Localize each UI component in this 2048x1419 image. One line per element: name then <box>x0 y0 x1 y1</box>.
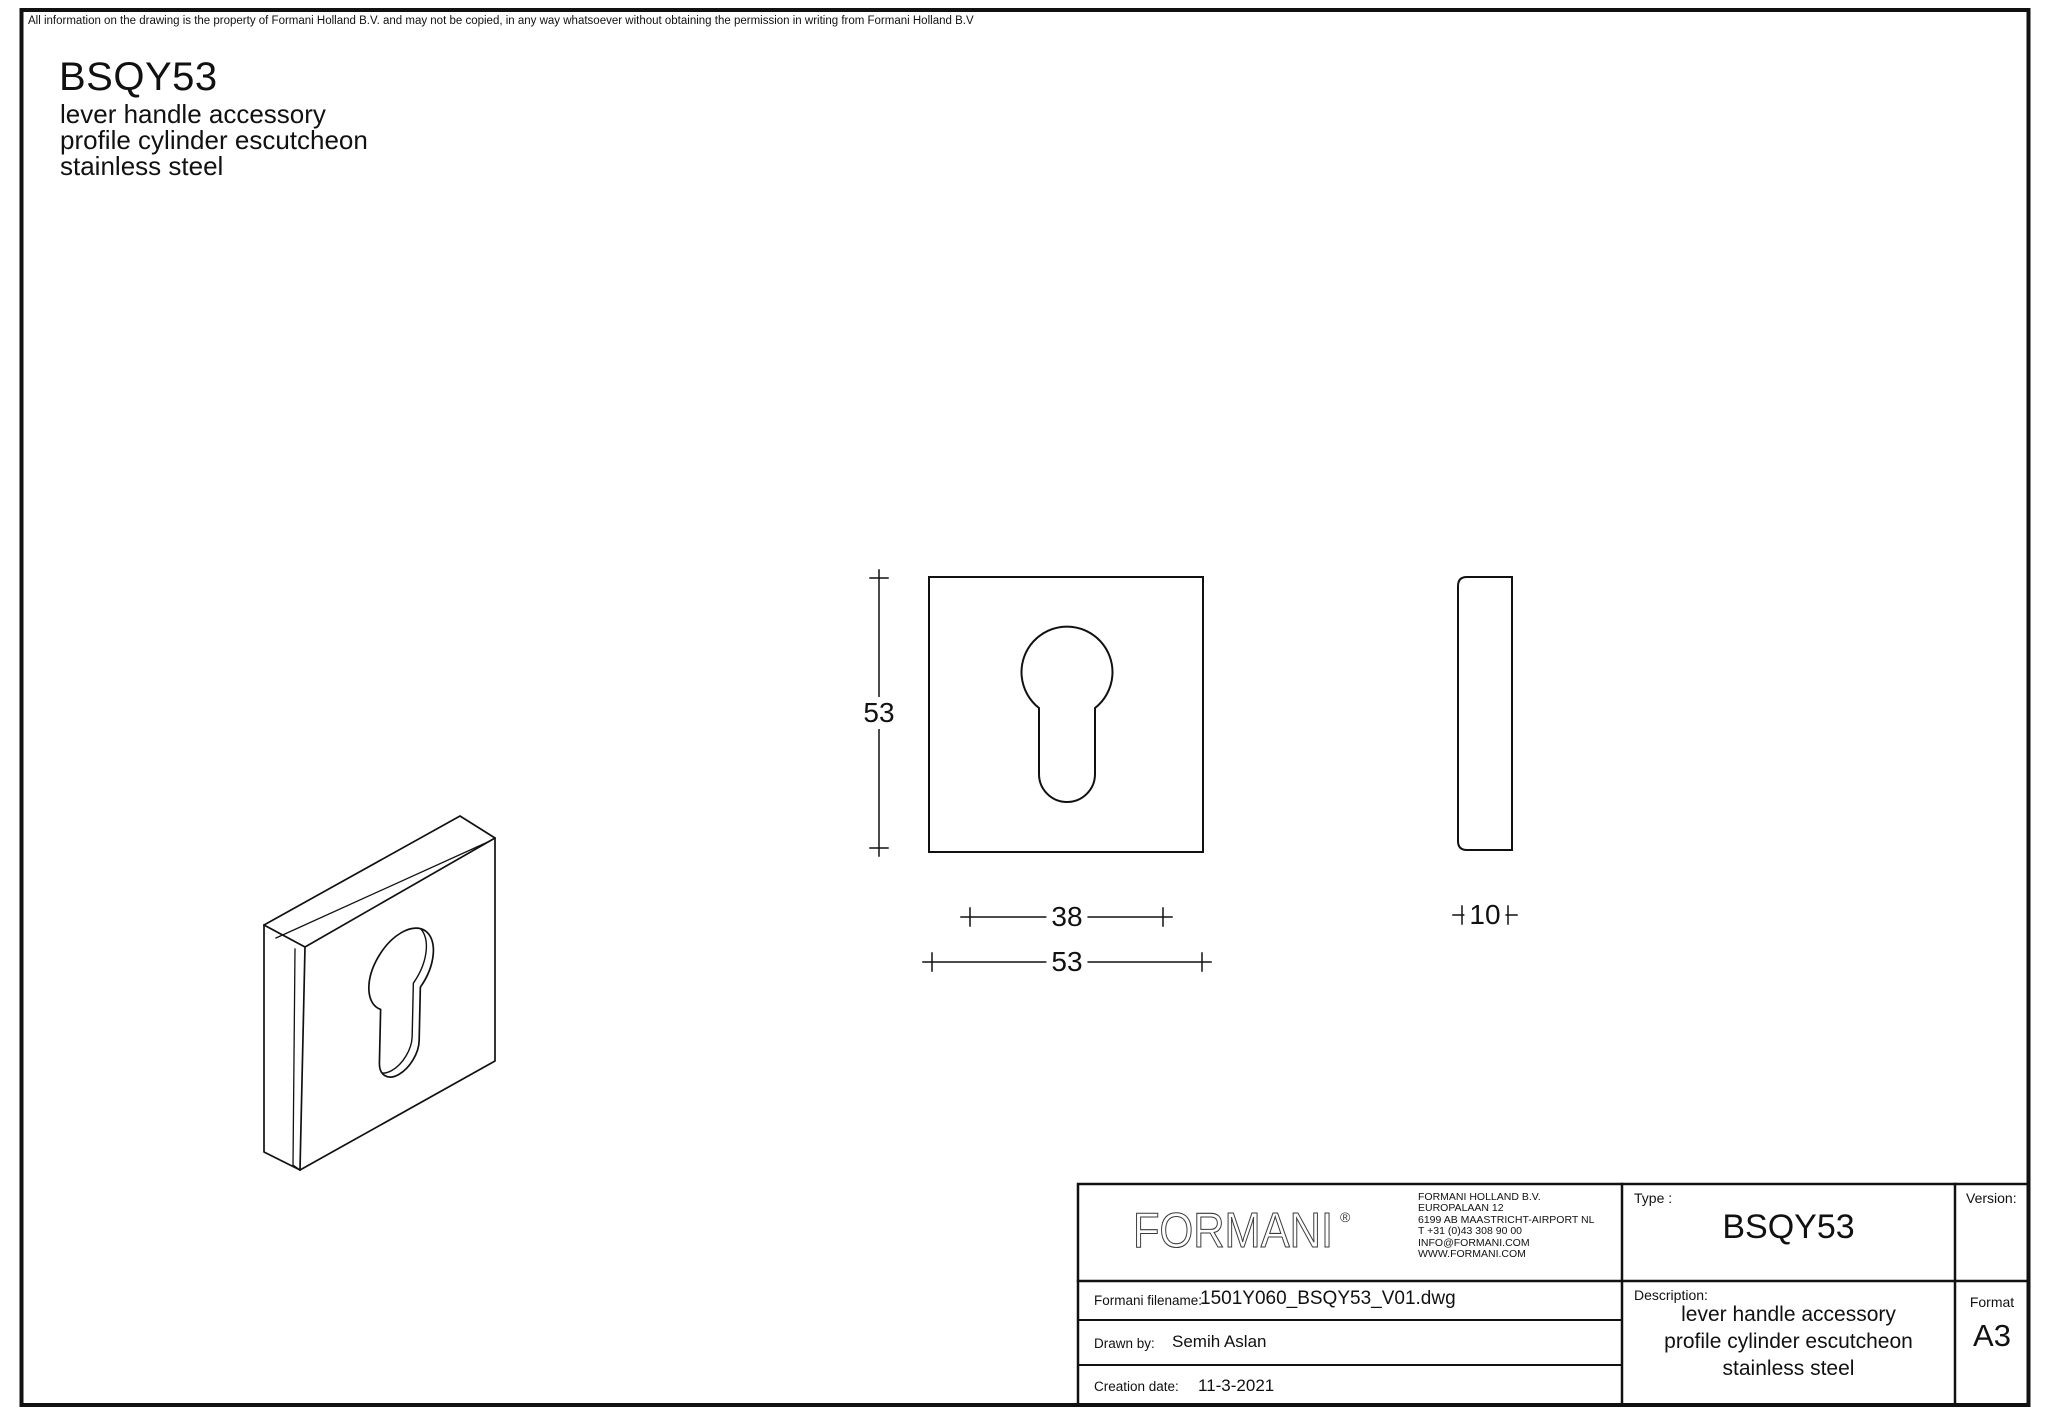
description-line: profile cylinder escutcheon <box>1622 1328 1955 1355</box>
company-address-block: FORMANI HOLLAND B.V. EUROPALAAN 12 6199 … <box>1418 1192 1594 1260</box>
dimension-lines <box>870 570 1517 971</box>
page-title: BSQY53 <box>59 55 218 100</box>
dim-label-front-width: 53 <box>1046 946 1087 978</box>
format-label: Format <box>1955 1294 2029 1310</box>
product-subtitle-line-3: stainless steel <box>60 153 223 179</box>
isometric-view <box>264 816 495 1170</box>
drawing-linework: FORMANI ® <box>0 0 2048 1419</box>
product-subtitle-line-2: profile cylinder escutcheon <box>60 127 368 153</box>
type-value: BSQY53 <box>1622 1208 1955 1247</box>
creation-date-label: Creation date: <box>1094 1379 1179 1394</box>
formani-logo: FORMANI ® <box>1133 1204 1351 1258</box>
filename-label: Formani filename: <box>1094 1293 1202 1308</box>
front-view <box>929 577 1203 852</box>
filename-value: 1501Y060_BSQY53_V01.dwg <box>1200 1288 1456 1310</box>
format-value: A3 <box>1955 1318 2029 1354</box>
front-view-keyhole-cutout <box>1022 627 1113 802</box>
version-label: Version: <box>1966 1190 2017 1206</box>
registered-mark-icon: ® <box>1340 1209 1351 1225</box>
formani-logo-text: FORMANI <box>1133 1204 1333 1258</box>
company-line: T +31 (0)43 308 90 00 <box>1418 1226 1594 1237</box>
drawing-sheet: FORMANI ® All information on the drawing… <box>0 0 2048 1419</box>
drawn-by-label: Drawn by: <box>1094 1336 1155 1351</box>
dim-label-front-height: 53 <box>858 697 899 729</box>
description-lines: lever handle accessory profile cylinder … <box>1622 1301 1955 1382</box>
description-line: lever handle accessory <box>1622 1301 1955 1328</box>
description-line: stainless steel <box>1622 1355 1955 1382</box>
type-label: Type : <box>1634 1190 1672 1206</box>
company-line: WWW.FORMANI.COM <box>1418 1249 1594 1260</box>
copyright-disclaimer: All information on the drawing is the pr… <box>28 15 974 27</box>
creation-date-value: 11-3-2021 <box>1198 1376 1274 1396</box>
page-border <box>22 10 2029 1405</box>
dim-label-thickness: 10 <box>1464 899 1505 931</box>
dim-label-hole-width: 38 <box>1046 901 1087 933</box>
product-subtitle-line-1: lever handle accessory <box>60 101 326 127</box>
side-view-outline <box>1458 577 1512 850</box>
drawn-by-value: Semih Aslan <box>1172 1332 1267 1352</box>
